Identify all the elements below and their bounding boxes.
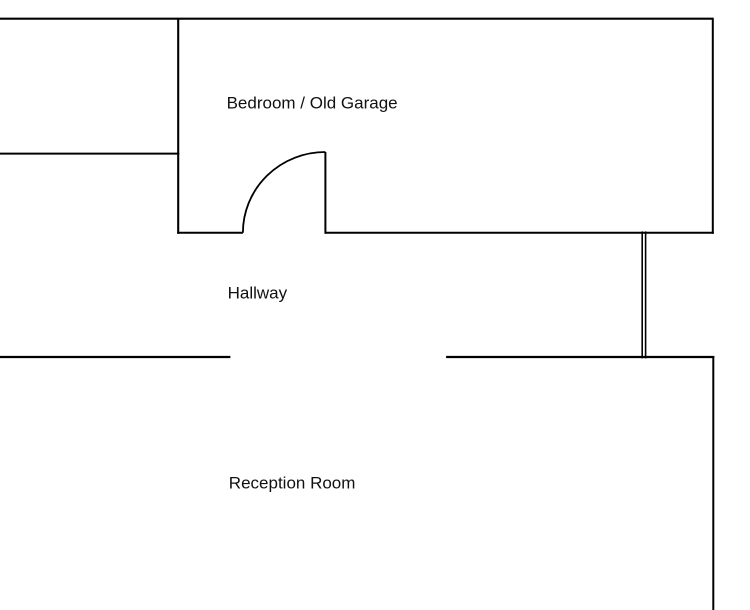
svg-text:Hallway: Hallway <box>228 284 288 303</box>
svg-text:Reception Room: Reception Room <box>229 474 356 493</box>
svg-text:Bedroom / Old Garage: Bedroom / Old Garage <box>227 94 398 113</box>
